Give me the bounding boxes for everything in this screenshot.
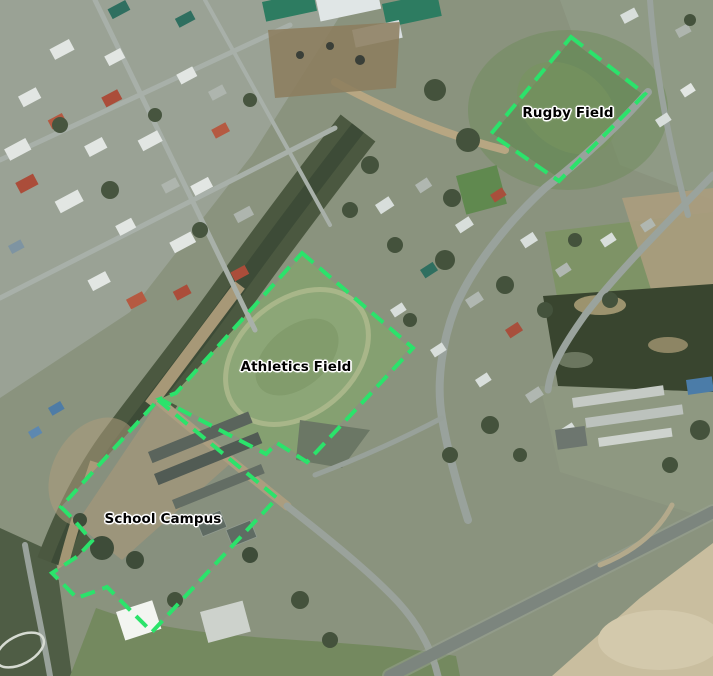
vector-overlay [0, 0, 713, 676]
label-rugby-field: Rugby Field [522, 105, 613, 121]
label-school-campus: School Campus [105, 511, 222, 527]
map-canvas[interactable]: Rugby Field Athletics Field School Campu… [0, 0, 713, 676]
label-athletics-field: Athletics Field [241, 359, 352, 375]
